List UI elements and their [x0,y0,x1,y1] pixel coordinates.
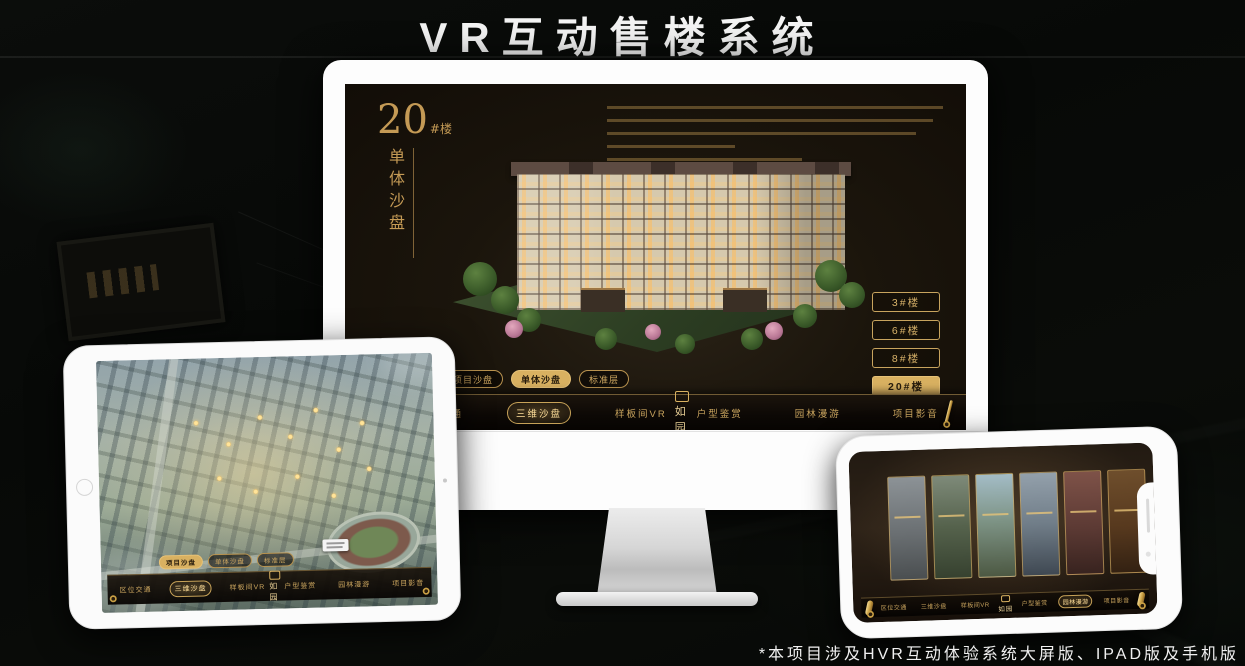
blossom-tree [505,320,523,338]
tree [675,334,695,354]
building-facade [517,174,845,310]
floor-button-group: 3#楼 6#楼 8#楼 20#楼 [872,292,940,396]
brand-logo-text: 如园 [998,602,1013,612]
nav-left-group: 区位交通 三维沙盘 样板间VR [115,578,269,598]
building-render [517,162,845,330]
tree [741,328,763,350]
brand-seal-icon [1001,595,1010,602]
nav-right-group: 户型鉴赏 园林漫游 项目影音 [280,575,428,593]
nav-item-3d-sandtable[interactable]: 三维沙盘 [507,402,571,424]
building-marker[interactable] [253,489,258,494]
nav-right-group: 户型鉴赏 园林漫游 项目影音 [689,403,947,423]
camera-dot [443,478,447,482]
nav-right-group: 户型鉴赏 园林漫游 项目影音 [1018,593,1132,610]
tablet-screen-aerial-view: 项目沙盘 单体沙盘 标准层 区位交通 三维沙盘 样板间VR 如园 户型鉴赏 园林… [96,353,438,613]
tree [839,282,865,308]
phone-navbar: 区位交通 三维沙盘 样板间VR 如园 户型鉴赏 园林漫游 项目影音 [861,589,1149,618]
monitor-base [556,592,758,606]
panorama-card-row [887,469,1148,581]
nav-left-group: 区位交通 三维沙盘 样板间VR [878,599,993,614]
phone-screen: 区位交通 三维沙盘 样板间VR 如园 户型鉴赏 园林漫游 项目影音 [848,442,1157,622]
tab-single-sandtable[interactable]: 单体沙盘 [208,553,252,568]
tab-standard-floor[interactable]: 标准层 [579,370,629,388]
monitor-stand [597,508,717,596]
nav-item-project-media[interactable]: 项目影音 [1100,594,1132,606]
panorama-card[interactable] [887,476,928,581]
building-number: 20 [377,97,428,143]
nav-item-floorplans[interactable]: 户型鉴赏 [689,403,751,423]
building-number-suffix: #楼 [430,122,452,136]
speaker-slit [1146,498,1150,532]
scroll-handle-icon[interactable] [1137,591,1146,607]
nav-item-garden-roam[interactable]: 园林漫游 [334,577,374,592]
nav-item-floorplans[interactable]: 户型鉴赏 [280,578,320,593]
tree [595,328,617,350]
nav-item-3d-sandtable[interactable]: 三维沙盘 [169,580,211,597]
tree [463,262,497,296]
floor-button-6[interactable]: 6#楼 [872,320,940,340]
nav-item-showroom-vr[interactable]: 样板间VR [225,579,269,594]
stage: VR互动售楼系统 20#楼 单体沙盘 [0,0,1245,666]
brand-logo: 如园 [269,570,281,602]
brand-logo: 如园 [998,594,1014,612]
nav-item-showroom-vr[interactable]: 样板间VR [958,599,993,611]
building-marker[interactable] [288,434,293,439]
floor-button-3[interactable]: 3#楼 [872,292,940,312]
nav-item-location[interactable]: 区位交通 [115,582,155,597]
blossom-tree [645,324,661,340]
building-marker[interactable] [295,474,300,479]
building-entrance [723,288,767,312]
brand-logo-text: 如园 [675,403,689,431]
building-marker[interactable] [367,466,372,471]
brand-seal-icon [675,391,689,402]
floor-button-20[interactable]: 20#楼 [872,376,940,396]
building-marker[interactable] [257,415,262,420]
building-badge: 20#楼 单体沙盘 [377,100,452,258]
nav-item-floorplans[interactable]: 户型鉴赏 [1018,597,1050,609]
nav-item-garden-roam[interactable]: 园林漫游 [1058,594,1092,608]
sandtable-tab-row: 项目沙盘 单体沙盘 标准层 [443,370,629,388]
footnote-text: *本项目涉及HVR互动体验系统大屏版、IPAD版及手机版 [759,640,1239,664]
home-button[interactable] [76,479,93,496]
building-marker[interactable] [331,493,336,498]
blossom-tree [765,322,783,340]
tab-project-sandtable[interactable]: 项目沙盘 [159,554,203,569]
nav-item-project-media[interactable]: 项目影音 [885,403,947,423]
tree [491,286,519,314]
building-marker[interactable] [360,420,365,425]
building-marker[interactable] [226,442,231,447]
brand-logo-text: 如园 [269,580,281,602]
nav-item-3d-sandtable[interactable]: 三维沙盘 [918,600,950,612]
nav-item-garden-roam[interactable]: 园林漫游 [787,403,849,423]
cloud [381,353,438,384]
panorama-card[interactable] [1063,470,1104,575]
panorama-card[interactable] [1019,471,1060,576]
background-glow [0,70,190,230]
panorama-card[interactable] [975,473,1016,578]
building-marker[interactable] [217,476,222,481]
phone-notch [1136,482,1156,574]
nav-item-showroom-vr[interactable]: 样板间VR [607,403,675,423]
tablet-tab-row: 项目沙盘 单体沙盘 标准层 [159,552,294,569]
floor-button-8[interactable]: 8#楼 [872,348,940,368]
tree [793,304,817,328]
tab-single-sandtable[interactable]: 单体沙盘 [511,370,571,388]
scroll-handle-icon[interactable] [865,600,874,616]
background-sign-board [56,223,225,342]
tooltip [322,539,348,552]
building-marker[interactable] [336,447,341,452]
nav-item-location[interactable]: 区位交通 [878,601,910,613]
building-marker[interactable] [313,408,318,413]
page-title: VR互动售楼系统 [0,4,1245,65]
tablet-device: 项目沙盘 单体沙盘 标准层 区位交通 三维沙盘 样板间VR 如园 户型鉴赏 园林… [63,336,462,629]
building-subtitle: 单体沙盘 [383,148,414,258]
tab-standard-floor[interactable]: 标准层 [257,552,294,567]
building-entrance [581,288,625,312]
building-marker[interactable] [193,421,198,426]
brand-logo: 如园 [675,391,689,431]
panorama-card[interactable] [931,474,972,579]
front-camera-dot [1146,551,1151,556]
phone-device: 区位交通 三维沙盘 样板间VR 如园 户型鉴赏 园林漫游 项目影音 [835,426,1183,640]
brand-seal-icon [269,570,280,579]
